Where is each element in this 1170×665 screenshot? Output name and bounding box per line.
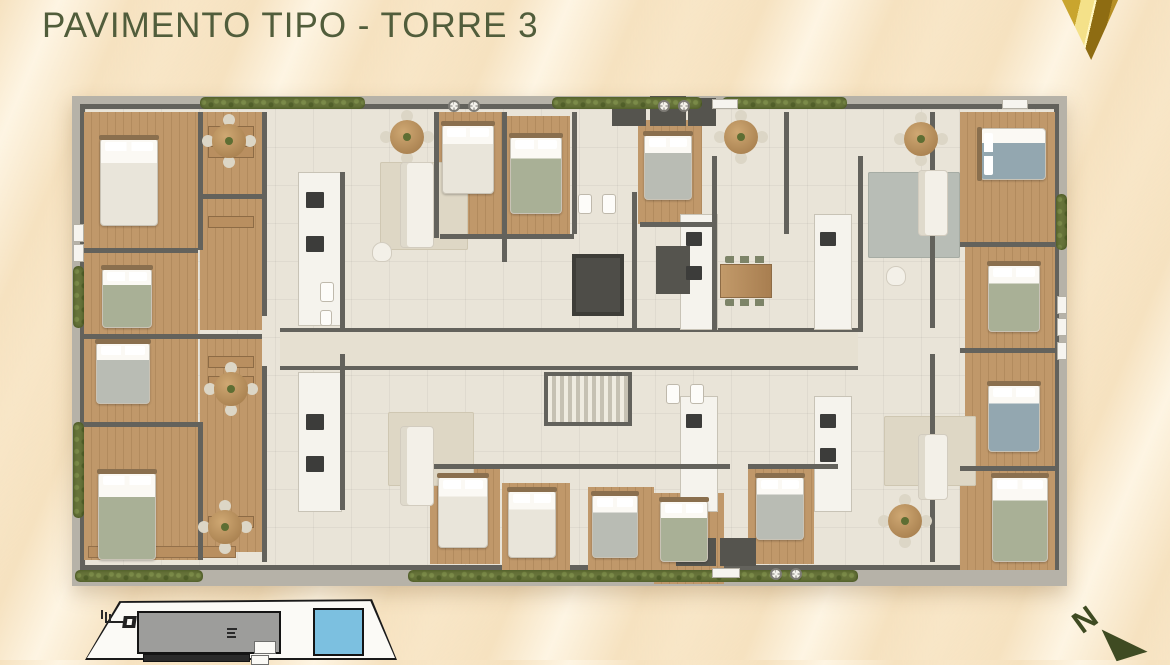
site-plan-pool xyxy=(313,608,364,656)
bed xyxy=(988,384,1040,452)
appliance xyxy=(820,414,836,428)
site-plan-building-court xyxy=(254,641,276,654)
sofa xyxy=(400,162,434,248)
wall-segment xyxy=(198,422,203,560)
exhaust-fan-icon xyxy=(770,568,782,580)
bed xyxy=(508,490,556,558)
bed xyxy=(592,494,638,558)
exhaust-fan-icon xyxy=(678,100,690,112)
appliance xyxy=(306,236,324,252)
round-dining-table xyxy=(214,372,248,406)
wall-segment xyxy=(200,194,262,199)
bathroom-fixture xyxy=(602,194,616,214)
site-plan-building-court xyxy=(251,655,269,665)
bed xyxy=(644,134,692,200)
bathroom-fixture xyxy=(690,384,704,404)
exhaust-fan-icon xyxy=(658,100,670,112)
wall-segment xyxy=(960,242,1055,247)
site-plan-side-label-mark xyxy=(105,612,107,621)
site-plan-label-mark xyxy=(227,636,236,638)
site-plan-label-mark xyxy=(227,628,237,630)
wall-segment xyxy=(784,112,789,234)
bed xyxy=(98,472,156,560)
exhaust-fan-icon xyxy=(790,568,802,580)
bed xyxy=(988,264,1040,332)
wall-segment xyxy=(748,464,838,469)
wall-segment xyxy=(340,354,345,510)
ac-unit xyxy=(712,568,740,578)
bed xyxy=(756,476,804,540)
wall-segment xyxy=(640,222,717,227)
wall-segment xyxy=(960,348,1055,353)
wall-segment xyxy=(434,112,439,238)
staircase xyxy=(544,372,632,426)
round-dining-table xyxy=(724,120,758,154)
ac-unit xyxy=(73,224,84,242)
wall-segment xyxy=(262,366,267,562)
site-plan-side-label-mark xyxy=(101,610,103,619)
ac-unit xyxy=(73,244,84,262)
round-dining-table xyxy=(390,120,424,154)
hedge-planter xyxy=(1056,194,1067,250)
wall-segment xyxy=(572,112,577,234)
bed xyxy=(100,138,158,226)
round-dining-table xyxy=(212,124,246,158)
bathroom-fixture xyxy=(578,194,592,214)
hedge-planter xyxy=(75,570,203,582)
bathroom-fixture xyxy=(666,384,680,404)
compass-north-label: N xyxy=(1066,599,1105,641)
appliance xyxy=(820,448,836,462)
wall-segment xyxy=(198,112,203,250)
bed xyxy=(438,476,488,548)
site-plan-label-mark xyxy=(227,632,235,634)
site-plan-building-2 xyxy=(143,654,250,662)
ac-unit xyxy=(1057,342,1067,360)
wall-segment xyxy=(632,192,637,332)
bed xyxy=(96,342,150,404)
bed xyxy=(102,268,152,328)
exhaust-fan-icon xyxy=(448,100,460,112)
sofa xyxy=(918,434,948,500)
service-shaft xyxy=(720,538,756,566)
wall-segment xyxy=(858,156,863,332)
appliance xyxy=(306,414,324,430)
wall-segment xyxy=(960,466,1055,471)
north-compass: N xyxy=(1042,596,1167,660)
hedge-planter xyxy=(200,97,365,109)
armchair xyxy=(372,242,392,262)
wall-segment xyxy=(262,112,267,316)
appliance xyxy=(686,266,702,280)
appliance xyxy=(306,192,324,208)
wardrobe xyxy=(208,216,254,228)
bed xyxy=(510,136,562,214)
round-dining-table xyxy=(904,122,938,156)
round-dining-table xyxy=(208,510,242,544)
wall-segment xyxy=(440,234,574,239)
wardrobe xyxy=(208,356,254,368)
site-plan-building xyxy=(137,611,281,654)
floor-plan xyxy=(72,96,1067,586)
appliance xyxy=(820,232,836,246)
bed xyxy=(660,500,708,562)
wall-segment xyxy=(430,464,730,469)
appliance xyxy=(686,232,702,246)
ac-unit xyxy=(1002,99,1028,109)
site-plan-leader-line xyxy=(105,621,123,623)
wall-segment xyxy=(340,172,345,328)
wall-segment xyxy=(84,422,198,427)
sofa xyxy=(918,170,948,236)
appliance xyxy=(686,414,702,428)
page-title: PAVIMENTO TIPO - TORRE 3 xyxy=(42,6,539,46)
dining-table xyxy=(720,264,772,298)
ac-unit xyxy=(712,99,738,109)
site-plan-side-label-mark xyxy=(109,614,111,623)
compass-arrow-icon xyxy=(1098,628,1149,665)
ac-unit xyxy=(1057,296,1067,314)
bed xyxy=(442,124,494,194)
hedge-planter xyxy=(722,97,847,109)
kitchen-counter xyxy=(298,372,342,512)
gold-arrow-icon xyxy=(1061,0,1119,60)
hedge-planter xyxy=(73,266,84,328)
elevator-shaft xyxy=(572,254,624,316)
sofa xyxy=(400,426,434,506)
bathroom-fixture xyxy=(320,310,332,326)
site-plan-inset xyxy=(85,598,397,660)
round-dining-table xyxy=(888,504,922,538)
wall-segment xyxy=(84,248,198,253)
hedge-planter xyxy=(73,422,84,518)
bed xyxy=(980,128,1046,180)
wall-segment xyxy=(712,156,717,332)
exhaust-fan-icon xyxy=(468,100,480,112)
bathroom-fixture xyxy=(320,282,334,302)
wall-segment xyxy=(502,112,507,262)
ac-unit xyxy=(1057,318,1067,336)
bed xyxy=(992,476,1048,562)
service-shaft xyxy=(656,246,690,294)
armchair xyxy=(886,266,906,286)
central-corridor xyxy=(280,328,858,370)
site-plan-entrance-icon xyxy=(122,616,137,628)
appliance xyxy=(306,456,324,472)
